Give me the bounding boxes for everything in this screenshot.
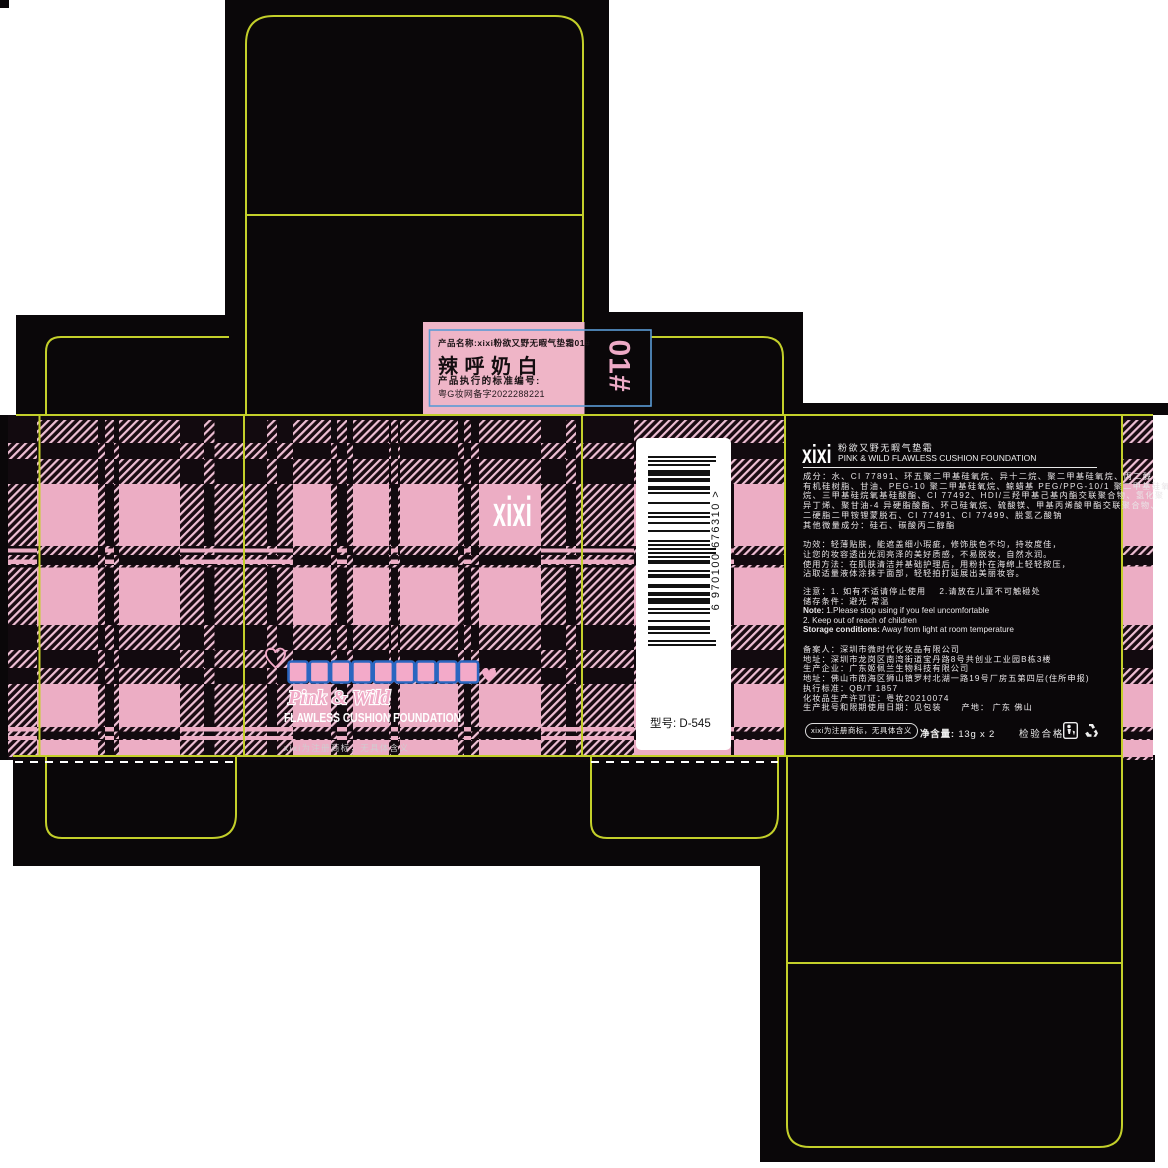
svg-text:xixi为注册商标，无具体含义: xixi为注册商标，无具体含义 (284, 743, 409, 753)
svg-text:型号: D-545: 型号: D-545 (650, 716, 711, 730)
svg-text:01#: 01# (603, 339, 636, 392)
svg-text:Pink & Wild: Pink & Wild (287, 687, 391, 709)
svg-text:6 970100 676310 >: 6 970100 676310 > (710, 490, 722, 611)
svg-text:FLAWLESS CUSHION FOUNDATION: FLAWLESS CUSHION FOUNDATION (284, 710, 461, 725)
svg-text:xixi: xixi (493, 488, 532, 535)
